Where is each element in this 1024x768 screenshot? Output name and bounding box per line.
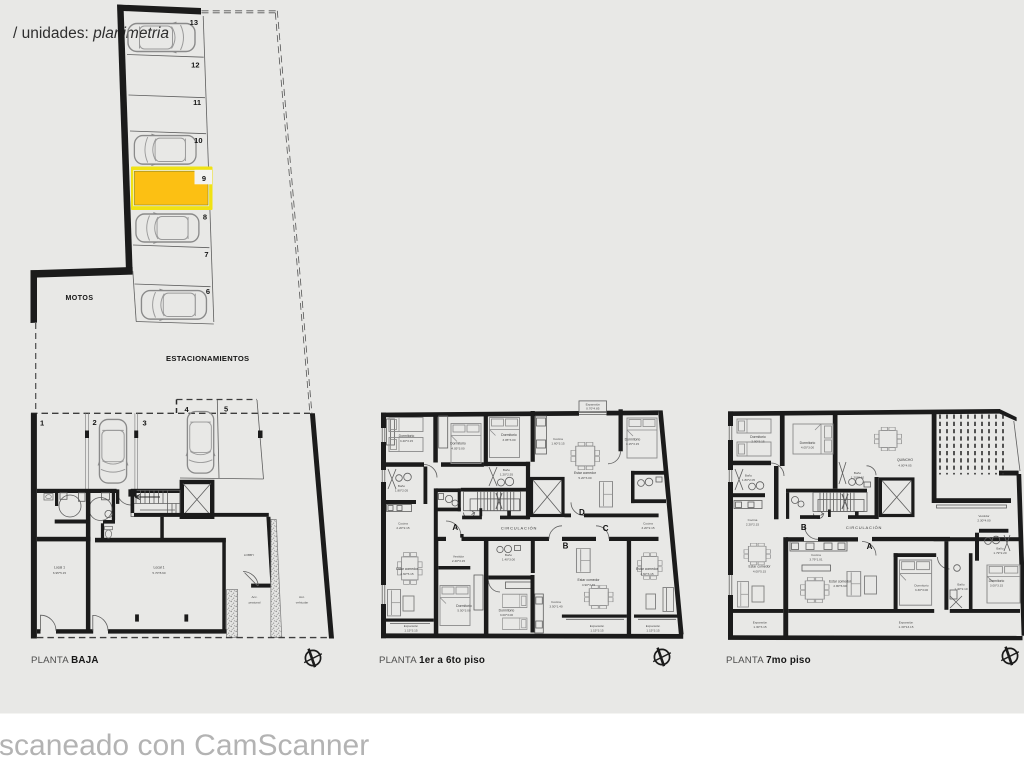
- svg-text:Dormitorio: Dormitorio: [800, 441, 816, 445]
- svg-text:2.40*3.15: 2.40*3.15: [452, 559, 466, 563]
- svg-text:Cocina: Cocina: [398, 522, 408, 526]
- svg-text:2: 2: [93, 418, 97, 427]
- svg-text:1.80*2.05: 1.80*2.05: [742, 478, 756, 482]
- svg-text:1.80*2.05: 1.80*2.05: [395, 489, 409, 493]
- svg-text:Baño: Baño: [505, 553, 513, 557]
- svg-text:Estar comedor: Estar comedor: [636, 567, 659, 571]
- svg-text:Escaneado con CamScanner: Escaneado con CamScanner: [0, 729, 369, 762]
- svg-text:1.15*3.15: 1.15*3.15: [404, 629, 418, 633]
- svg-text:8: 8: [203, 213, 207, 222]
- svg-text:Estar comedor: Estar comedor: [577, 578, 600, 582]
- svg-text:Cocina: Cocina: [553, 437, 563, 441]
- svg-text:Cocina: Cocina: [643, 522, 653, 526]
- svg-text:Local 1: Local 1: [154, 566, 165, 570]
- svg-text:1.20*2.55: 1.20*2.55: [500, 473, 514, 477]
- svg-text:1.15*3.15: 1.15*3.15: [646, 629, 660, 633]
- svg-text:Baño: Baño: [996, 547, 1004, 551]
- svg-text:11: 11: [193, 98, 201, 107]
- svg-text:Dormitorio: Dormitorio: [625, 437, 641, 441]
- svg-text:Vestidor: Vestidor: [453, 555, 464, 559]
- svg-text:B: B: [563, 542, 569, 551]
- svg-text:1.30*3.15: 1.30*3.15: [753, 625, 767, 629]
- svg-text:Baño: Baño: [398, 484, 406, 488]
- svg-text:0.70*4.85: 0.70*4.85: [586, 406, 600, 410]
- svg-text:Estar comedor: Estar comedor: [748, 565, 771, 569]
- svg-text:ESTACIONAMIENTOS: ESTACIONAMIENTOS: [166, 354, 249, 363]
- svg-text:3.20*2.15: 3.20*2.15: [641, 526, 655, 530]
- svg-text:6.95*5.15: 6.95*5.15: [53, 571, 67, 575]
- svg-text:Acc.: Acc.: [299, 595, 305, 599]
- svg-text:Estar comedor: Estar comedor: [396, 567, 419, 571]
- svg-text:1.15*3.15: 1.15*3.15: [590, 629, 604, 633]
- svg-text:13: 13: [190, 18, 198, 27]
- svg-text:4.00*5.15: 4.00*5.15: [753, 570, 767, 574]
- svg-text:A: A: [867, 542, 873, 551]
- svg-text:PLANTA 7mo piso: PLANTA 7mo piso: [726, 655, 811, 666]
- svg-text:Dormitorio: Dormitorio: [501, 433, 517, 437]
- svg-text:Expansión: Expansión: [590, 624, 605, 628]
- svg-text:vehicular: vehicular: [296, 601, 308, 605]
- svg-text:3.00*3.00: 3.00*3.00: [500, 613, 514, 617]
- svg-text:Dormitorio: Dormitorio: [450, 442, 466, 446]
- svg-text:Dormitorio: Dormitorio: [750, 435, 766, 439]
- svg-text:Dormitorio: Dormitorio: [456, 604, 472, 608]
- svg-text:1.79*2.20: 1.79*2.20: [993, 551, 1007, 555]
- svg-text:Dormitorio: Dormitorio: [914, 584, 929, 588]
- svg-text:3: 3: [143, 419, 147, 428]
- svg-text:1: 1: [40, 419, 44, 428]
- svg-text:Expansión: Expansión: [899, 621, 914, 625]
- svg-text:3.79*1.01: 3.79*1.01: [809, 558, 823, 562]
- svg-text:/ unidades: planimetria: / unidades: planimetria: [13, 25, 169, 42]
- svg-text:LOBBY: LOBBY: [244, 553, 254, 557]
- svg-text:12: 12: [191, 61, 199, 70]
- svg-text:Dormitorio: Dormitorio: [399, 434, 415, 438]
- svg-text:B: B: [801, 523, 807, 532]
- svg-text:peatonal: peatonal: [249, 601, 261, 605]
- svg-text:Dormitorio: Dormitorio: [499, 609, 515, 613]
- svg-text:A: A: [452, 523, 458, 532]
- svg-text:Cocina: Cocina: [811, 553, 821, 557]
- svg-text:5.70*8.60: 5.70*8.60: [152, 571, 166, 575]
- svg-text:4.90*3.45: 4.90*3.45: [582, 583, 596, 587]
- svg-text:3.30*3.00: 3.30*3.00: [915, 588, 929, 592]
- svg-text:Dormitorio: Dormitorio: [989, 579, 1005, 583]
- svg-text:2.80*6.90: 2.80*6.90: [833, 584, 847, 588]
- svg-text:Baño: Baño: [957, 583, 965, 587]
- svg-text:Estar comedor: Estar comedor: [574, 471, 597, 475]
- svg-text:5.50*3.00: 5.50*3.00: [457, 609, 471, 613]
- svg-text:7: 7: [204, 250, 208, 259]
- svg-text:PLANTA BAJA: PLANTA BAJA: [31, 655, 99, 666]
- svg-text:Cocina: Cocina: [551, 600, 561, 604]
- svg-text:5.20*3.00: 5.20*3.00: [578, 476, 592, 480]
- svg-text:MOTOS: MOTOS: [65, 295, 93, 302]
- svg-text:Baño: Baño: [503, 468, 511, 472]
- svg-text:1.40*3.00: 1.40*3.00: [502, 558, 516, 562]
- svg-text:4.05*3.00: 4.05*3.00: [801, 446, 815, 450]
- svg-text:1.40*2.10: 1.40*2.10: [954, 587, 968, 591]
- svg-text:Acc.: Acc.: [251, 595, 257, 599]
- svg-text:Cocina: Cocina: [748, 518, 758, 522]
- svg-text:3.40*3.15: 3.40*3.15: [400, 439, 414, 443]
- svg-text:4.60*3.15: 4.60*3.15: [640, 572, 654, 576]
- svg-text:QUINCHO: QUINCHO: [897, 458, 913, 462]
- svg-text:2.60*5.15: 2.60*5.15: [400, 572, 414, 576]
- svg-text:3.00*3.15: 3.00*3.15: [990, 584, 1004, 588]
- svg-text:Baño: Baño: [745, 474, 753, 478]
- svg-text:C: C: [603, 524, 609, 533]
- svg-text:1.20*2.40: 1.20*2.40: [851, 476, 865, 480]
- svg-text:3.50*1.40: 3.50*1.40: [549, 605, 563, 609]
- svg-text:10: 10: [194, 136, 202, 145]
- svg-text:Local 1: Local 1: [54, 566, 65, 570]
- svg-text:2.90*3.15: 2.90*3.15: [751, 440, 765, 444]
- svg-text:4.05*3.00: 4.05*3.00: [451, 447, 465, 451]
- svg-text:D: D: [579, 508, 585, 517]
- svg-text:2.20*2.15: 2.20*2.15: [396, 526, 410, 530]
- svg-text:1.60*3.15: 1.60*3.15: [551, 442, 565, 446]
- svg-text:3.05*3.00: 3.05*3.00: [502, 438, 516, 442]
- svg-text:6: 6: [206, 287, 210, 296]
- svg-text:Expansión: Expansión: [753, 621, 768, 625]
- svg-text:3.15*3.15: 3.15*3.15: [626, 442, 640, 446]
- svg-text:9: 9: [202, 174, 206, 183]
- svg-text:2.20*2.15: 2.20*2.15: [746, 523, 760, 527]
- svg-text:4.00*4.05: 4.00*4.05: [898, 464, 912, 468]
- svg-text:CIRCULACIÓN: CIRCULACIÓN: [846, 525, 882, 530]
- svg-text:CIRCULACIÓN: CIRCULACIÓN: [501, 526, 537, 531]
- svg-text:Baño: Baño: [854, 471, 862, 475]
- svg-text:2.30*4.00: 2.30*4.00: [977, 519, 991, 523]
- svg-text:Estar comedor: Estar comedor: [829, 580, 852, 584]
- svg-text:1.30*13.15: 1.30*13.15: [899, 625, 914, 629]
- svg-text:PLANTA 1er a 6to piso: PLANTA 1er a 6to piso: [379, 655, 485, 666]
- svg-text:Vestidor: Vestidor: [978, 514, 989, 518]
- svg-text:5: 5: [224, 405, 228, 414]
- svg-text:Expansión: Expansión: [404, 624, 419, 628]
- svg-text:Expansión: Expansión: [646, 624, 661, 628]
